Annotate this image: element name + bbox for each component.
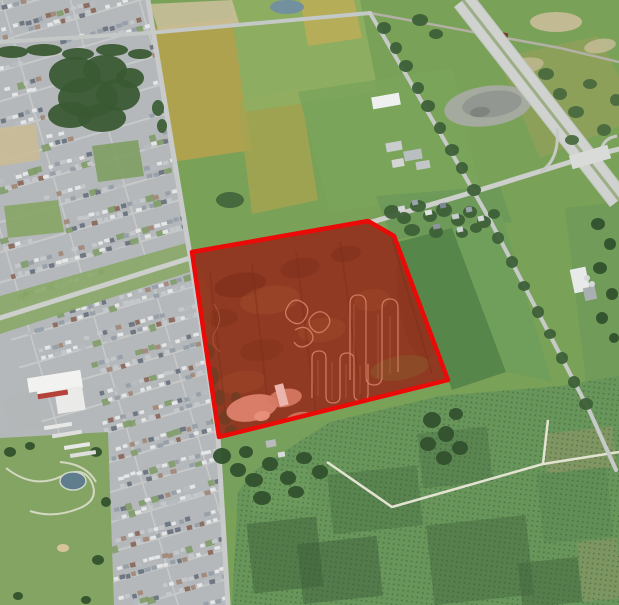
aerial-map-view[interactable] (0, 0, 619, 605)
satellite-image (0, 0, 619, 605)
